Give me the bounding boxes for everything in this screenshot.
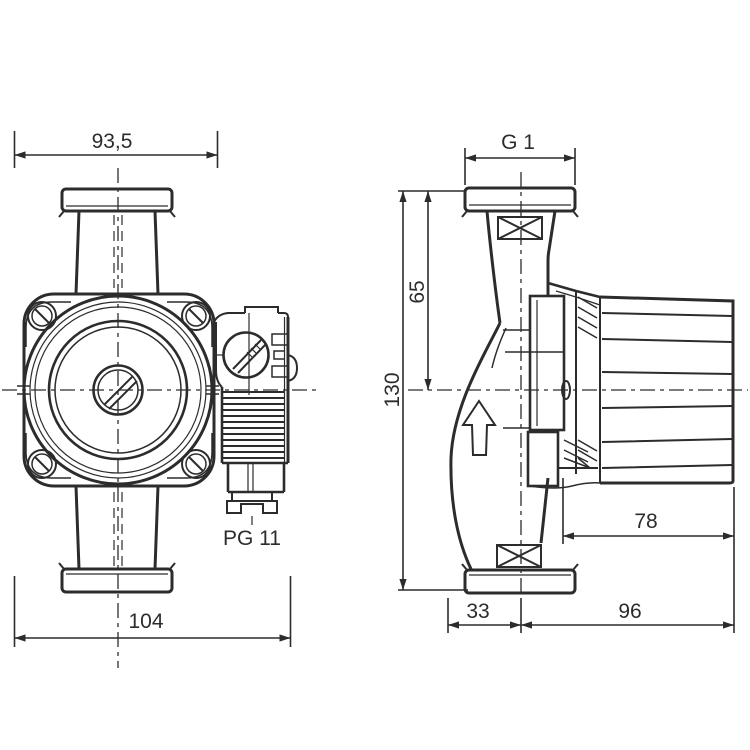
arrowhead-icon [510,621,521,628]
flow-arrow-icon [463,401,495,455]
dim-label-top-width: 93,5 [92,130,133,153]
speed-selector-knob [224,333,269,378]
dim-label-axis-to-front: 33 [466,600,489,623]
cable-gland-label: PG 11 [223,527,281,550]
dimension-axis-offsets: 33 96 [448,598,734,633]
screw-icon [28,302,56,330]
technical-drawing-page: 93,5 104 PG 11 [0,0,750,750]
arrowhead-icon [448,621,459,628]
arrowhead-icon [15,634,26,641]
pump-dimensional-drawing: 93,5 104 PG 11 [0,0,750,750]
arrowhead-icon [521,621,532,628]
dimension-motor-depth: 78 [563,478,734,633]
front-top-port [59,189,175,294]
screw-icon [28,450,56,478]
arrowhead-icon [207,151,218,158]
side-terminal-box [528,432,600,488]
side-top-port [462,188,578,323]
dim-label-port-thread: G 1 [501,131,535,154]
arrowhead-icon [564,154,575,161]
arrowhead-icon [465,154,476,161]
arrowhead-icon [723,621,734,628]
side-volute [451,323,563,569]
arrowhead-icon [424,191,431,202]
front-view: 93,5 104 PG 11 [2,130,318,668]
dim-label-overall-width: 104 [128,610,163,633]
dim-label-overall-height: 130 [381,372,404,407]
cable-gland [227,463,284,525]
side-motor-cone [548,283,600,483]
front-bottom-port [59,486,175,592]
arrowhead-icon [424,379,431,390]
arrowhead-icon [399,579,406,590]
terminal-box-ribs [223,392,284,458]
dimension-top-width: 93,5 [15,130,218,168]
dimension-overall-width: 104 [15,576,291,647]
dimension-port-to-axis: 65 [406,191,432,390]
arrowhead-icon [399,191,406,202]
dim-label-axis-to-back: 96 [618,600,641,623]
arrowhead-icon [15,151,26,158]
dim-label-motor-depth: 78 [634,510,657,533]
dimension-port-thread: G 1 [465,131,575,185]
arrowhead-icon [280,634,291,641]
dimension-overall-height: 130 [381,191,468,590]
arrowhead-icon [563,532,574,539]
dim-label-port-to-axis: 65 [406,280,429,303]
front-terminal-box [214,307,297,463]
side-flange-plate [530,296,570,430]
terminal-box-vents [272,334,288,377]
side-view: G 1 65 130 78 [381,131,748,633]
arrowhead-icon [723,532,734,539]
side-bottom-port [462,478,578,593]
